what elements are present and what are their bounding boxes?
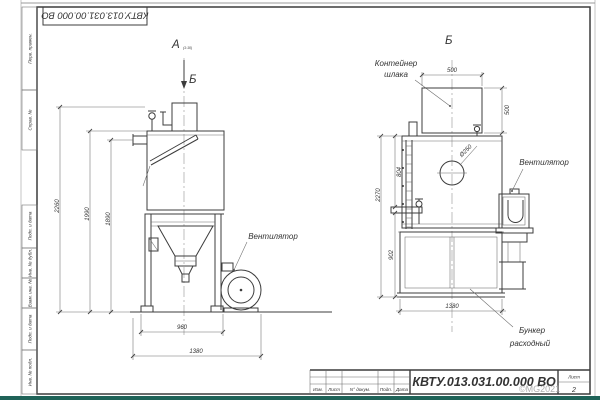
rev-header: Подп.: [380, 387, 392, 392]
rev-header: N° докум.: [350, 387, 370, 392]
drawing-frame: [37, 7, 590, 394]
fan-label: Вентилятор: [519, 158, 569, 167]
bottom-edge-strip: [0, 396, 600, 400]
bunker-label-1: Бункер: [519, 326, 546, 335]
margin-label: Инв. № дубл.: [28, 249, 33, 277]
ladder: [402, 140, 412, 229]
fan-callout-a: Вентилятор: [233, 232, 298, 271]
bunker-label-2: расходный: [509, 339, 551, 348]
margin-label: Взам. инв. №: [28, 279, 33, 307]
view-a-label: А: [171, 39, 180, 51]
view-b: Б Контейнер шлака: [375, 35, 570, 348]
stamp-doc-number: КВТУ.013.031.00.000 ВО: [41, 10, 149, 21]
view-direction-arrow: Б: [181, 60, 197, 89]
margin-label: Инв. № подл.: [28, 358, 33, 387]
fan-front: [221, 263, 261, 312]
drawing-sheet: Перв. примен. Справ. № Подп. и дата Инв.…: [0, 0, 600, 400]
bunker: [397, 232, 505, 297]
slag-container-label-1: Контейнер: [375, 59, 418, 68]
view-a-scale: (1:10): [183, 46, 192, 50]
dim-500-h: 500: [505, 104, 511, 115]
rev-header: Дата: [395, 387, 409, 392]
dim-1380-b: 1380: [445, 304, 459, 310]
dim-960: 960: [177, 325, 188, 331]
slag-container-callout: Контейнер шлака: [375, 59, 451, 107]
stamp-rotated: КВТУ.013.031.00.000 ВО: [41, 7, 149, 25]
margin-column: Перв. примен. Справ. № Подп. и дата Инв.…: [22, 7, 37, 394]
bunker-callout: Бункер расходный: [470, 289, 551, 348]
engineering-drawing: Перв. примен. Справ. № Подп. и дата Инв.…: [0, 0, 600, 400]
rev-header: Лист: [327, 387, 340, 392]
view-a: Б А (1:10): [55, 39, 332, 360]
sheet-cell-label: Лист: [567, 375, 580, 380]
fan-callout-b: Вентилятор: [511, 158, 569, 192]
sheet-number: 2: [571, 387, 576, 394]
dim-hole-dia: Ø250: [458, 144, 474, 160]
dimensions-view-b: 500 500 2270 804 902 1380: [376, 68, 511, 315]
rev-header: Изм.: [313, 387, 323, 392]
dim-2270: 2270: [376, 188, 382, 203]
dimensions-view-a: 2260 1990 1890 960 1380: [55, 105, 263, 360]
apparatus-side: [391, 88, 533, 297]
hole-dia-callout: Ø250: [458, 144, 477, 165]
margin-label: Перв. примен.: [28, 33, 33, 64]
fan-label: Вентилятор: [248, 232, 298, 241]
sheet-edges: [21, 0, 595, 396]
margin-label: Подп. и дата: [28, 211, 33, 240]
margin-label: Подп. и дата: [28, 314, 33, 343]
slag-container-label-2: шлака: [384, 70, 408, 79]
dim-1990: 1990: [85, 207, 91, 221]
dim-2260: 2260: [55, 199, 61, 214]
dim-500-w: 500: [447, 68, 458, 74]
dim-1890: 1890: [106, 212, 112, 226]
dim-804: 804: [397, 166, 403, 177]
watermark: ©MG2021: [519, 384, 560, 394]
margin-label: Справ. №: [28, 110, 33, 131]
dim-902: 902: [389, 249, 395, 260]
view-arrow-label: Б: [189, 74, 197, 86]
view-b-label: Б: [445, 35, 453, 47]
dim-1380-a: 1380: [189, 349, 203, 355]
apparatus-front: [130, 103, 332, 312]
